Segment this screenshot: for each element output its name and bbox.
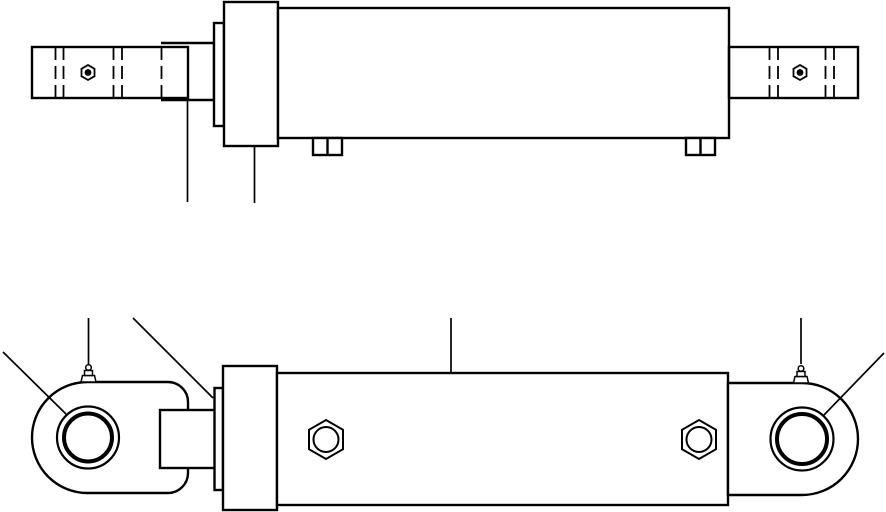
cap-grease-zerk-neck	[797, 372, 805, 377]
gland-flange	[214, 23, 224, 126]
head-cap-side	[223, 366, 277, 510]
rod-grease-zerk-ball	[86, 365, 92, 371]
side-view	[3, 318, 884, 510]
piston-rod-side	[160, 410, 215, 468]
cylinder-technical-drawing	[0, 0, 886, 512]
top-view	[32, 2, 858, 203]
cylinder-barrel	[278, 8, 729, 138]
cap-eye-pin-nut-center	[797, 69, 804, 76]
rod-eye-pin-nut-center	[85, 69, 92, 76]
rod-grease-zerk-neck	[85, 371, 93, 376]
head-cap	[224, 2, 278, 146]
drawing-figure	[0, 0, 886, 512]
cap-grease-zerk-ball	[798, 366, 804, 372]
cylinder-barrel-side	[277, 373, 728, 505]
rod-grease-zerk-base	[81, 376, 96, 383]
cap-grease-zerk-base	[794, 377, 809, 384]
leader-rod-bushing	[3, 352, 66, 414]
gland-flange-side	[215, 388, 224, 490]
leader-cap-bushing	[823, 353, 884, 416]
